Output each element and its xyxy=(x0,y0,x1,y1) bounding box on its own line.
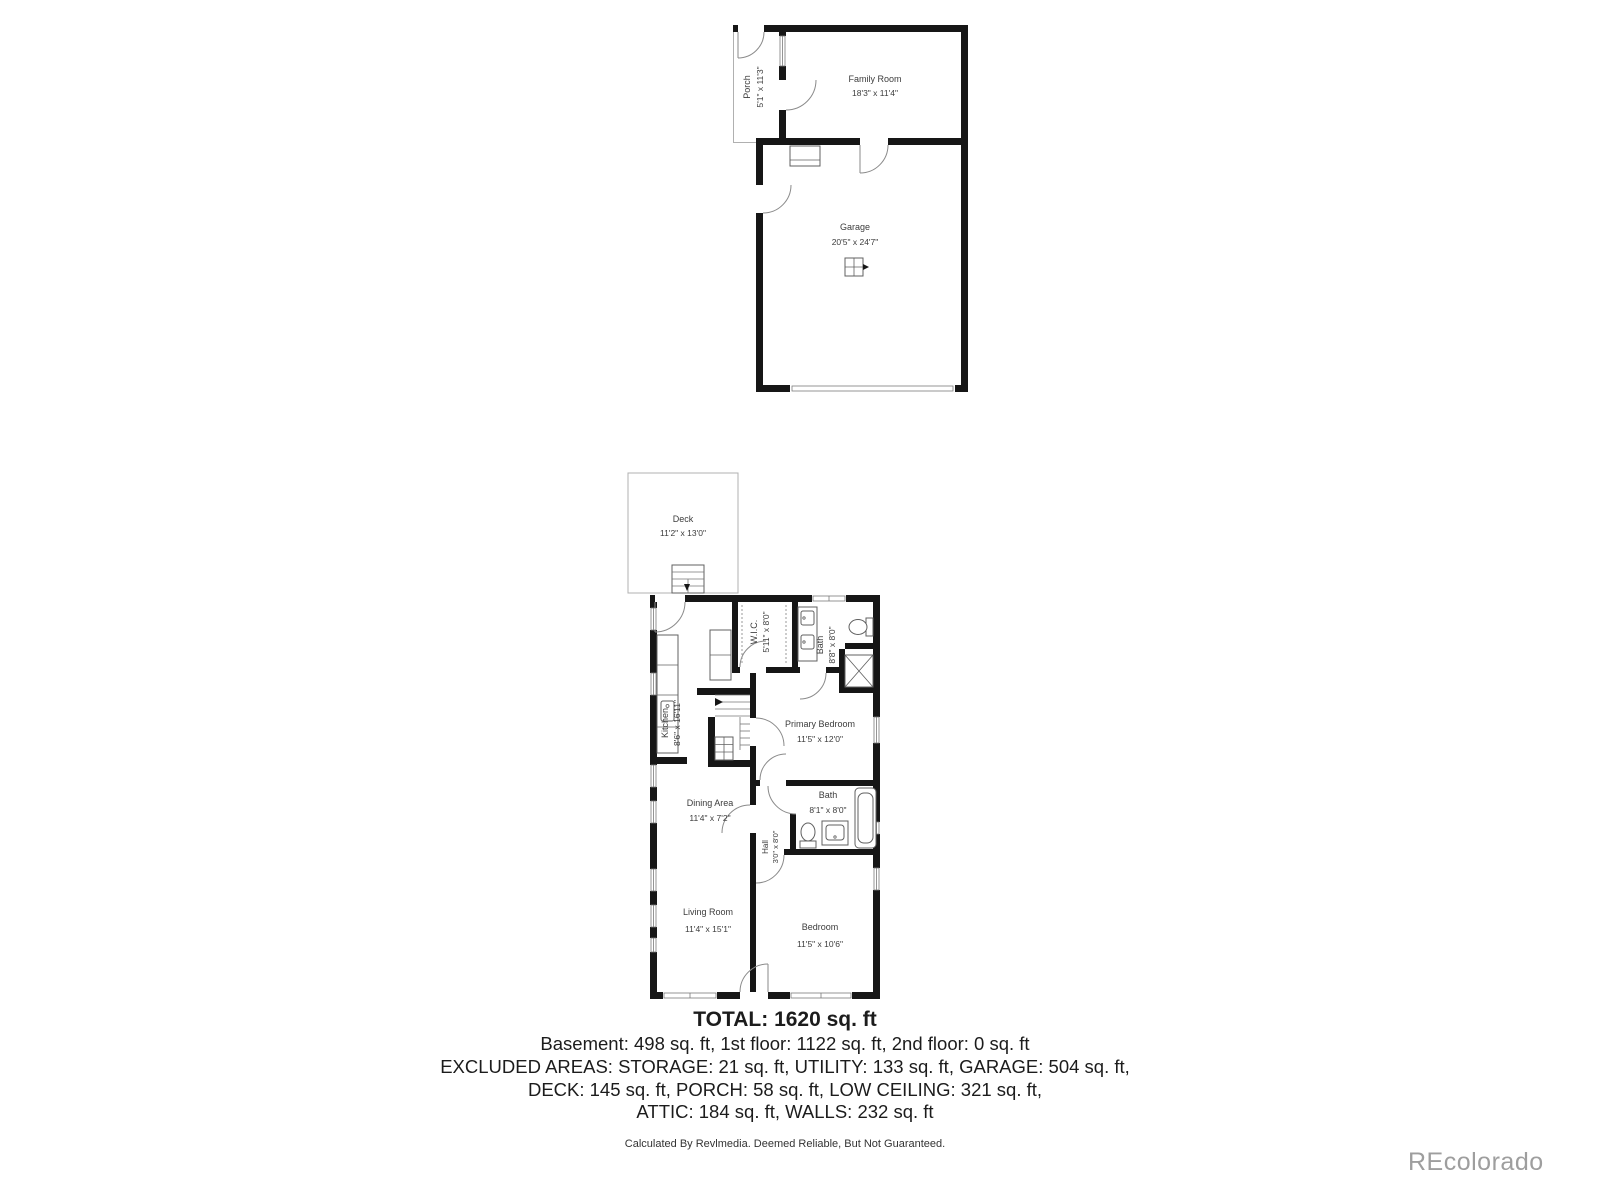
svg-text:8'6" x 16'11": 8'6" x 16'11" xyxy=(672,700,682,746)
svg-text:5'1" x 11'3": 5'1" x 11'3" xyxy=(755,66,765,107)
svg-text:11'5" x 10'6": 11'5" x 10'6" xyxy=(797,939,843,949)
svg-text:3'0" x 8'0": 3'0" x 8'0" xyxy=(771,830,780,863)
dining-area-label: Dining Area 11'4" x 7'2" xyxy=(687,798,734,823)
bedroom-label: Bedroom 11'5" x 10'6" xyxy=(797,922,843,949)
summary-line-floors: Basement: 498 sq. ft, 1st floor: 1122 sq… xyxy=(85,1033,1485,1055)
svg-text:Porch: Porch xyxy=(742,75,752,99)
svg-text:Family Room: Family Room xyxy=(848,74,901,84)
svg-text:Hall: Hall xyxy=(761,840,770,854)
kitchen-entry-door xyxy=(655,595,685,632)
garage-door xyxy=(790,385,955,392)
svg-text:Deck: Deck xyxy=(673,514,694,524)
bathtub-icon xyxy=(855,788,876,848)
summary-line-excluded-2: DECK: 145 sq. ft, PORCH: 58 sq. ft, LOW … xyxy=(85,1079,1485,1101)
garage-storage-closet xyxy=(790,146,820,166)
basement-floor-plan: Porch 5'1" x 11'3" Family Room 18'3" x 1… xyxy=(725,18,975,398)
svg-text:Garage: Garage xyxy=(840,222,870,232)
svg-text:Living Room: Living Room xyxy=(683,907,733,917)
svg-text:5'11" x 8'0": 5'11" x 8'0" xyxy=(761,611,771,652)
disclaimer-text: Calculated By Revlmedia. Deemed Reliable… xyxy=(85,1138,1485,1150)
lower-bath-label: Bath 8'1" x 8'0" xyxy=(809,790,846,815)
deck-label: Deck 11'2" x 13'0" xyxy=(660,514,706,538)
living-room-label: Living Room 11'4" x 15'1" xyxy=(683,907,733,934)
stove-icon xyxy=(715,737,733,760)
hall-label: Hall 3'0" x 8'0" xyxy=(761,830,780,863)
total-area-heading: TOTAL: 1620 sq. ft xyxy=(85,1008,1485,1032)
furnace-icon xyxy=(845,258,869,276)
porch-family-room-window xyxy=(779,36,786,66)
primary-bedroom-label: Primary Bedroom 11'5" x 12'0" xyxy=(785,719,855,744)
svg-text:8'8" x 8'0": 8'8" x 8'0" xyxy=(827,626,837,663)
wic-label: W.I.C. 5'11" x 8'0" xyxy=(749,611,771,652)
deck-stairs xyxy=(672,565,704,593)
upper-bath-toilet-icon xyxy=(849,618,873,636)
floor-plan-page: Porch 5'1" x 11'3" Family Room 18'3" x 1… xyxy=(0,0,1600,1200)
svg-text:11'4" x 7'2": 11'4" x 7'2" xyxy=(689,813,730,823)
svg-text:18'3" x 11'4": 18'3" x 11'4" xyxy=(852,88,898,98)
family-room-label: Family Room 18'3" x 11'4" xyxy=(848,74,901,98)
bath-top-window xyxy=(812,595,846,602)
porch-family-room-door xyxy=(779,80,816,110)
summary-line-excluded-3: ATTIC: 184 sq. ft, WALLS: 232 sq. ft xyxy=(85,1101,1485,1123)
garage-label: Garage 20'5" x 24'7" xyxy=(832,222,879,247)
svg-text:Dining Area: Dining Area xyxy=(687,798,734,808)
svg-text:Bath: Bath xyxy=(815,636,825,655)
svg-text:11'2" x 13'0": 11'2" x 13'0" xyxy=(660,528,706,538)
summary-line-excluded-1: EXCLUDED AREAS: STORAGE: 21 sq. ft, UTIL… xyxy=(85,1056,1485,1078)
lower-bath-sink-icon xyxy=(822,821,848,845)
upper-bath-label: Bath 8'8" x 8'0" xyxy=(815,626,837,663)
svg-text:Kitchen: Kitchen xyxy=(660,708,670,738)
svg-text:8'1" x 8'0": 8'1" x 8'0" xyxy=(809,805,846,815)
recolorado-watermark: REcolorado xyxy=(1408,1148,1598,1177)
garage-entry-door xyxy=(860,138,888,173)
shower-icon xyxy=(845,655,873,687)
svg-text:Primary Bedroom: Primary Bedroom xyxy=(785,719,855,729)
lower-bath-toilet-icon xyxy=(800,823,816,848)
svg-text:11'5" x 12'0": 11'5" x 12'0" xyxy=(797,734,843,744)
svg-text:Bath: Bath xyxy=(819,790,838,800)
first-floor-plan: Deck 11'2" x 13'0" xyxy=(620,465,890,1005)
svg-text:Bedroom: Bedroom xyxy=(802,922,839,932)
svg-text:W.I.C.: W.I.C. xyxy=(749,620,759,645)
svg-text:20'5" x 24'7": 20'5" x 24'7" xyxy=(832,237,879,247)
svg-text:11'4" x 15'1": 11'4" x 15'1" xyxy=(685,924,731,934)
garage-side-door xyxy=(756,185,791,213)
porch-door xyxy=(738,25,764,58)
porch-label: Porch 5'1" x 11'3" xyxy=(742,66,765,107)
